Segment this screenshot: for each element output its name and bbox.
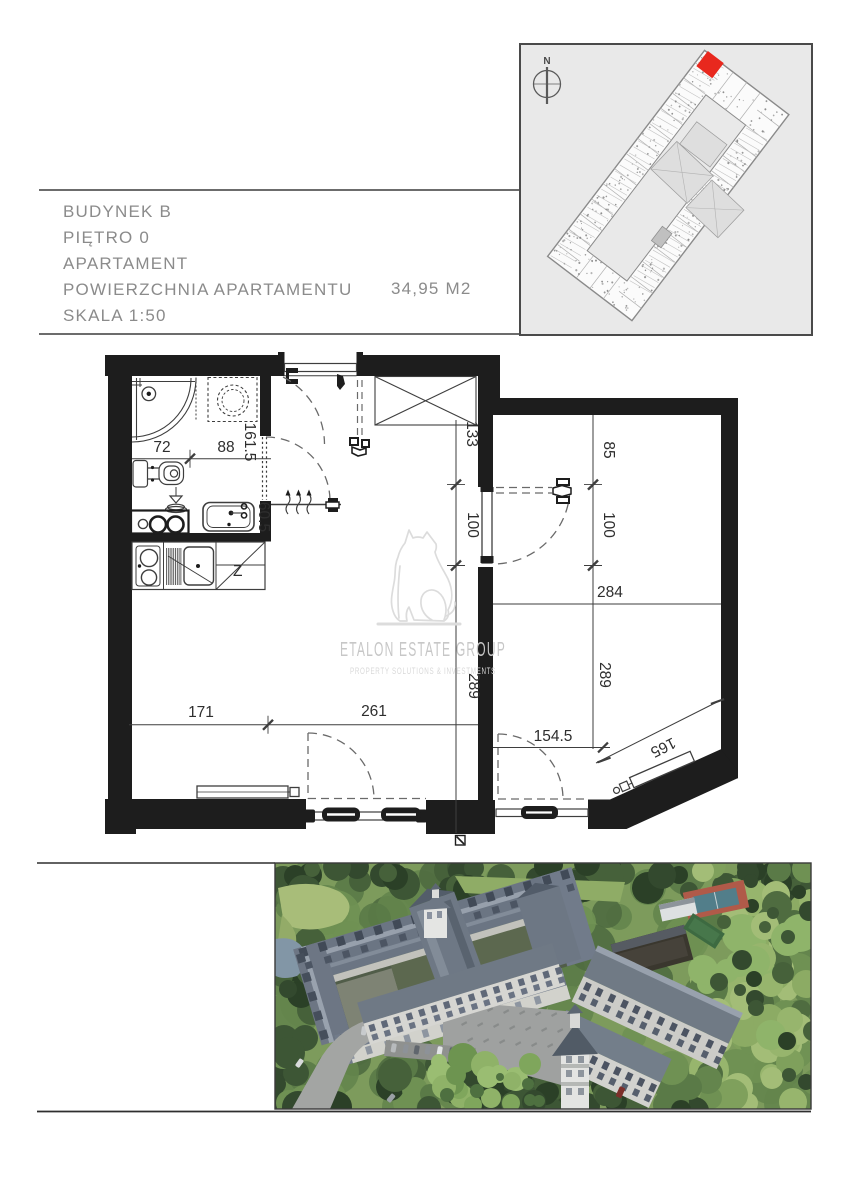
- svg-text:261: 261: [361, 703, 387, 720]
- svg-text:APARTAMENT: APARTAMENT: [63, 254, 188, 273]
- svg-text:72: 72: [153, 439, 170, 456]
- svg-text:PIĘTRO 0: PIĘTRO 0: [63, 228, 150, 247]
- svg-text:ETALON ESTATE GROUP: ETALON ESTATE GROUP: [340, 639, 506, 661]
- svg-text:161.5: 161.5: [241, 423, 258, 462]
- svg-text:100: 100: [600, 512, 617, 538]
- svg-text:171: 171: [188, 704, 214, 721]
- svg-text:289: 289: [465, 673, 482, 699]
- svg-text:PROPERTY SOLUTIONS & INVESTMEN: PROPERTY SOLUTIONS & INVESTMENTS: [350, 666, 496, 676]
- svg-text:284: 284: [597, 584, 623, 601]
- svg-text:34,95 M2: 34,95 M2: [391, 279, 471, 298]
- svg-text:133: 133: [463, 421, 480, 447]
- svg-text:N: N: [543, 56, 550, 67]
- svg-text:BUDYNEK B: BUDYNEK B: [63, 202, 172, 221]
- svg-text:85: 85: [600, 441, 617, 458]
- svg-text:289: 289: [596, 662, 613, 688]
- svg-text:100: 100: [464, 512, 481, 538]
- svg-text:POWIERZCHNIA APARTAMENTU: POWIERZCHNIA APARTAMENTU: [63, 280, 353, 299]
- svg-text:154.5: 154.5: [534, 728, 573, 745]
- svg-text:60.5: 60.5: [255, 502, 272, 532]
- svg-text:SKALA 1:50: SKALA 1:50: [63, 306, 167, 325]
- svg-text:Z: Z: [233, 563, 242, 580]
- svg-text:88: 88: [217, 439, 234, 456]
